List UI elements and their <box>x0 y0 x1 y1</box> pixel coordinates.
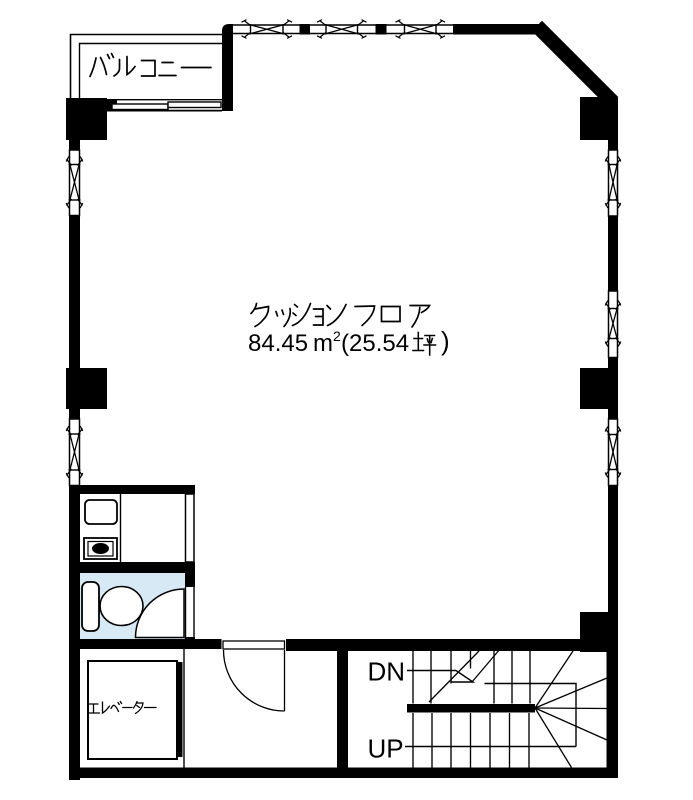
svg-text:(25.54: (25.54 <box>341 330 409 357</box>
svg-text:): ) <box>441 326 450 356</box>
svg-text:m: m <box>313 330 333 357</box>
svg-text:DN: DN <box>368 657 406 687</box>
svg-text:UP: UP <box>368 734 404 764</box>
svg-text:84.45: 84.45 <box>248 330 308 357</box>
svg-text:2: 2 <box>333 328 341 344</box>
